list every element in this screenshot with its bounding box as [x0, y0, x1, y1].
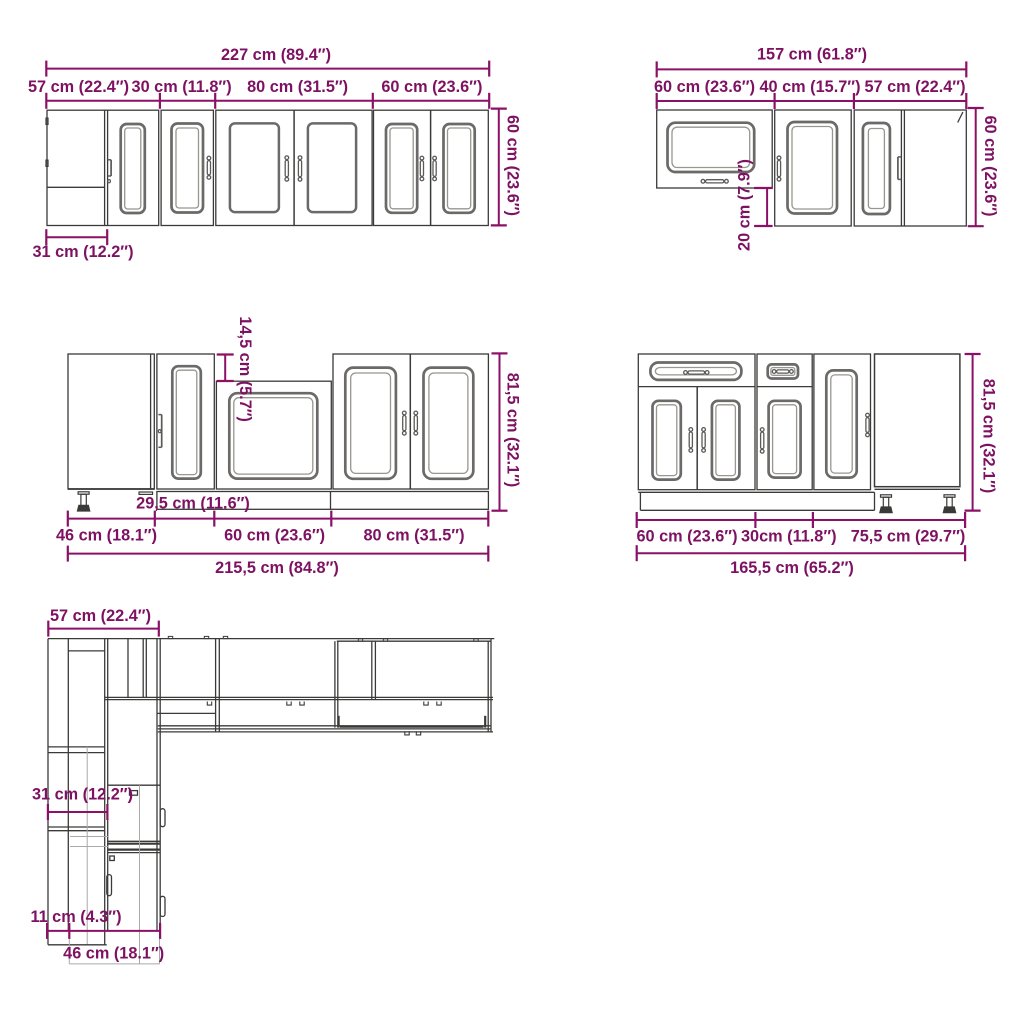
svg-text:75,5 cm (29.7″): 75,5 cm (29.7″)	[851, 528, 966, 546]
svg-text:30cm (11.8″): 30cm (11.8″)	[741, 528, 837, 546]
svg-text:215,5 cm (84.8″): 215,5 cm (84.8″)	[215, 559, 339, 577]
svg-text:31 cm (12.2″): 31 cm (12.2″)	[32, 243, 133, 261]
svg-text:60 cm (23.6″): 60 cm (23.6″)	[654, 78, 755, 96]
svg-text:60 cm (23.6″): 60 cm (23.6″)	[981, 115, 999, 216]
svg-text:46 cm (18.1″): 46 cm (18.1″)	[63, 945, 164, 963]
svg-text:46 cm (18.1″): 46 cm (18.1″)	[56, 527, 157, 545]
svg-text:60 cm (23.6″): 60 cm (23.6″)	[381, 78, 482, 96]
svg-text:57 cm (22.4″): 57 cm (22.4″)	[864, 78, 965, 96]
svg-text:81,5 cm (32.1″): 81,5 cm (32.1″)	[503, 373, 521, 488]
svg-text:80 cm (31.5″): 80 cm (31.5″)	[363, 527, 464, 545]
svg-text:57 cm (22.4″): 57 cm (22.4″)	[28, 78, 129, 96]
svg-text:31 cm (12.2″): 31 cm (12.2″)	[32, 786, 133, 804]
svg-text:80 cm (31.5″): 80 cm (31.5″)	[247, 78, 348, 96]
svg-text:60 cm (23.6″): 60 cm (23.6″)	[636, 528, 737, 546]
svg-text:60 cm (23.6″): 60 cm (23.6″)	[224, 527, 325, 545]
svg-text:14,5 cm (5.7″): 14,5 cm (5.7″)	[236, 316, 254, 422]
svg-text:227 cm (89.4″): 227 cm (89.4″)	[221, 46, 331, 64]
svg-text:11 cm (4.3″): 11 cm (4.3″)	[30, 908, 121, 926]
svg-text:29,5 cm (11.6″): 29,5 cm (11.6″)	[136, 495, 250, 513]
svg-text:81,5 cm (32.1″): 81,5 cm (32.1″)	[980, 379, 998, 494]
svg-text:60 cm (23.6″): 60 cm (23.6″)	[504, 115, 522, 216]
svg-text:20 cm (7.9″): 20 cm (7.9″)	[736, 159, 754, 251]
svg-text:165,5 cm (65.2″): 165,5 cm (65.2″)	[730, 559, 854, 577]
svg-text:30 cm (11.8″): 30 cm (11.8″)	[132, 78, 232, 96]
svg-text:157 cm (61.8″): 157 cm (61.8″)	[757, 46, 867, 64]
svg-text:57 cm (22.4″): 57 cm (22.4″)	[50, 607, 151, 625]
